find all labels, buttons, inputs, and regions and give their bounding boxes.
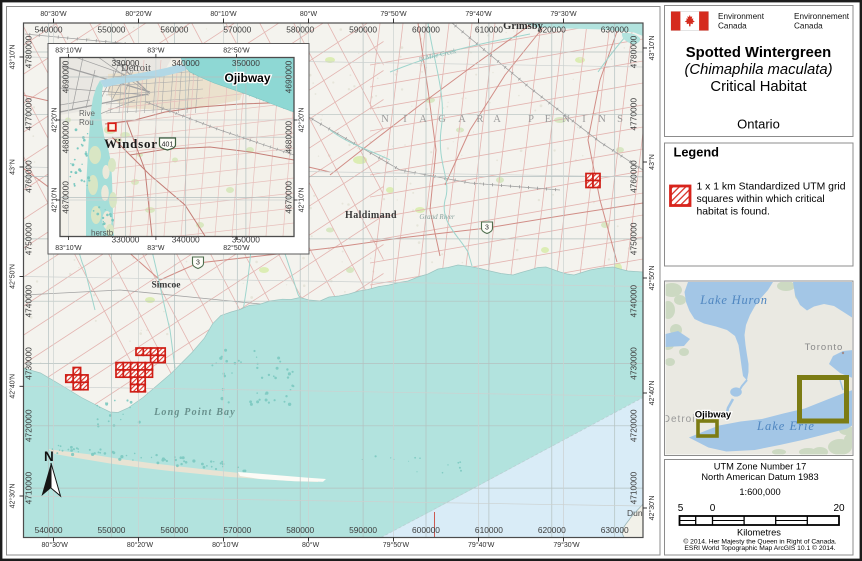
svg-text:ESRI World Topographic Map Arc: ESRI World Topographic Map ArcGIS 10.1 ©…: [684, 544, 835, 552]
svg-text:E: E: [545, 114, 551, 125]
svg-text:80°20'W: 80°20'W: [127, 541, 154, 549]
svg-text:Toronto: Toronto: [805, 342, 844, 353]
svg-text:S: S: [617, 114, 623, 125]
svg-text:I: I: [582, 114, 586, 125]
svg-text:Haldimand: Haldimand: [345, 210, 397, 221]
svg-text:42°40'N: 42°40'N: [9, 374, 17, 399]
svg-text:620000: 620000: [538, 525, 566, 535]
svg-text:42°50'N: 42°50'N: [648, 266, 656, 291]
svg-text:580000: 580000: [286, 25, 314, 35]
svg-text:Kilometres: Kilometres: [737, 527, 781, 537]
svg-text:83°W: 83°W: [147, 47, 165, 55]
svg-text:4740000: 4740000: [24, 285, 34, 318]
svg-text:North American Datum 1983: North American Datum 1983: [701, 472, 818, 482]
svg-text:630000: 630000: [601, 525, 629, 535]
svg-text:560000: 560000: [160, 25, 188, 35]
svg-text:590000: 590000: [349, 25, 377, 35]
svg-text:83°W: 83°W: [147, 244, 165, 252]
svg-text:4740000: 4740000: [629, 285, 639, 318]
svg-text:N: N: [562, 114, 570, 125]
svg-text:79°30'W: 79°30'W: [550, 10, 577, 18]
svg-text:79°40'W: 79°40'W: [468, 541, 495, 549]
svg-text:4760000: 4760000: [24, 160, 34, 193]
svg-text:Critical Habitat: Critical Habitat: [710, 79, 806, 95]
svg-text:43°N: 43°N: [648, 154, 656, 170]
svg-text:4720000: 4720000: [629, 409, 639, 442]
svg-text:UTM Zone Number 17: UTM Zone Number 17: [714, 462, 806, 472]
svg-text:Legend: Legend: [674, 145, 720, 160]
svg-text:4710000: 4710000: [629, 471, 639, 504]
svg-text:80°30'W: 80°30'W: [40, 10, 67, 18]
svg-text:4680000: 4680000: [61, 121, 71, 154]
svg-text:570000: 570000: [223, 525, 251, 535]
svg-text:4730000: 4730000: [24, 347, 34, 380]
svg-text:4780000: 4780000: [24, 35, 34, 68]
svg-text:4780000: 4780000: [629, 35, 639, 68]
svg-text:1:600,000: 1:600,000: [739, 487, 780, 497]
svg-text:Ontario: Ontario: [737, 117, 780, 132]
svg-text:340000: 340000: [172, 58, 200, 68]
svg-text:80°30'W: 80°30'W: [42, 541, 69, 549]
svg-text:79°30'W: 79°30'W: [553, 541, 580, 549]
svg-text:42°20'N: 42°20'N: [298, 108, 306, 133]
svg-text:83°10'W: 83°10'W: [55, 244, 82, 252]
svg-text:A: A: [493, 114, 501, 125]
svg-text:P: P: [528, 114, 534, 125]
svg-text:43°10'N: 43°10'N: [648, 36, 656, 61]
svg-text:A: A: [419, 114, 427, 125]
svg-text:Simcoe: Simcoe: [151, 281, 180, 291]
svg-text:G: G: [438, 114, 446, 125]
svg-text:N: N: [381, 114, 389, 125]
svg-text:Rou: Rou: [79, 118, 94, 127]
svg-text:3: 3: [485, 225, 489, 232]
svg-text:600000: 600000: [412, 25, 440, 35]
svg-text:R: R: [476, 114, 483, 125]
svg-text:600000: 600000: [412, 525, 440, 535]
svg-text:580000: 580000: [286, 525, 314, 535]
svg-text:82°50'W: 82°50'W: [223, 244, 250, 252]
svg-text:Long Point Bay: Long Point Bay: [153, 407, 236, 418]
svg-text:4770000: 4770000: [629, 98, 639, 131]
svg-text:Detroit: Detroit: [663, 414, 699, 425]
svg-text:570000: 570000: [223, 25, 251, 35]
svg-text:A: A: [458, 114, 466, 125]
svg-text:83°10'W: 83°10'W: [55, 47, 82, 55]
svg-text:Grand River: Grand River: [419, 213, 454, 221]
svg-text:79°50'W: 79°50'W: [383, 541, 410, 549]
svg-text:squares within which critical: squares within which critical: [697, 194, 825, 205]
svg-text:540000: 540000: [35, 525, 63, 535]
svg-text:4730000: 4730000: [629, 347, 639, 380]
svg-text:590000: 590000: [349, 525, 377, 535]
svg-text:79°40'W: 79°40'W: [465, 10, 492, 18]
svg-text:Lake Huron: Lake Huron: [699, 293, 768, 307]
svg-text:43°10'N: 43°10'N: [9, 45, 17, 70]
svg-text:401: 401: [162, 141, 174, 148]
svg-text:N: N: [44, 449, 54, 464]
svg-text:Windsor: Windsor: [104, 136, 158, 151]
svg-text:I: I: [403, 114, 407, 125]
svg-text:80°10'W: 80°10'W: [210, 10, 237, 18]
svg-text:80°20'W: 80°20'W: [125, 10, 152, 18]
svg-text:350000: 350000: [232, 58, 260, 68]
svg-text:0: 0: [710, 503, 716, 514]
svg-text:4690000: 4690000: [284, 60, 294, 93]
svg-text:610000: 610000: [475, 25, 503, 35]
svg-text:550000: 550000: [98, 525, 126, 535]
svg-text:Environment: Environment: [718, 12, 765, 21]
svg-text:Spotted Wintergreen: Spotted Wintergreen: [686, 45, 831, 61]
svg-text:Environnement: Environnement: [794, 12, 850, 21]
svg-text:42°50'N: 42°50'N: [9, 264, 17, 289]
svg-text:550000: 550000: [98, 25, 126, 35]
svg-text:Canada: Canada: [718, 22, 747, 31]
svg-text:Canada: Canada: [794, 22, 823, 31]
svg-text:4720000: 4720000: [24, 409, 34, 442]
svg-text:(Chimaphila maculata): (Chimaphila maculata): [684, 62, 832, 78]
svg-text:Dun: Dun: [627, 508, 643, 518]
svg-text:82°50'W: 82°50'W: [223, 47, 250, 55]
svg-text:80°10'W: 80°10'W: [212, 541, 239, 549]
svg-text:610000: 610000: [475, 525, 503, 535]
svg-text:Ojibway: Ojibway: [695, 410, 732, 421]
svg-text:1 x 1 km Standardized UTM grid: 1 x 1 km Standardized UTM grid: [697, 181, 846, 192]
svg-text:540000: 540000: [35, 25, 63, 35]
svg-text:4670000: 4670000: [61, 181, 71, 214]
svg-text:330000: 330000: [112, 58, 140, 68]
svg-text:80°W: 80°W: [302, 541, 320, 549]
svg-text:3: 3: [196, 260, 200, 267]
svg-text:630000: 630000: [601, 25, 629, 35]
svg-text:4680000: 4680000: [284, 121, 294, 154]
svg-text:5: 5: [678, 503, 684, 514]
svg-text:80°W: 80°W: [300, 10, 318, 18]
svg-text:N: N: [598, 114, 606, 125]
svg-text:4750000: 4750000: [24, 222, 34, 255]
svg-text:20: 20: [833, 503, 845, 514]
svg-text:Rive: Rive: [79, 109, 96, 118]
svg-text:42°30'N: 42°30'N: [9, 484, 17, 509]
svg-text:4760000: 4760000: [629, 160, 639, 193]
svg-text:4670000: 4670000: [284, 181, 294, 214]
svg-text:4710000: 4710000: [24, 471, 34, 504]
svg-text:42°30'N: 42°30'N: [648, 496, 656, 521]
svg-text:560000: 560000: [160, 525, 188, 535]
svg-text:43°N: 43°N: [9, 159, 17, 175]
svg-text:4770000: 4770000: [24, 98, 34, 131]
svg-text:4690000: 4690000: [61, 60, 71, 93]
svg-text:79°50'W: 79°50'W: [380, 10, 407, 18]
svg-text:4750000: 4750000: [629, 222, 639, 255]
svg-text:Ojibway: Ojibway: [224, 71, 270, 85]
svg-text:habitat is found.: habitat is found.: [697, 206, 770, 217]
svg-text:42°40'N: 42°40'N: [648, 381, 656, 406]
svg-text:42°10'N: 42°10'N: [298, 188, 306, 213]
